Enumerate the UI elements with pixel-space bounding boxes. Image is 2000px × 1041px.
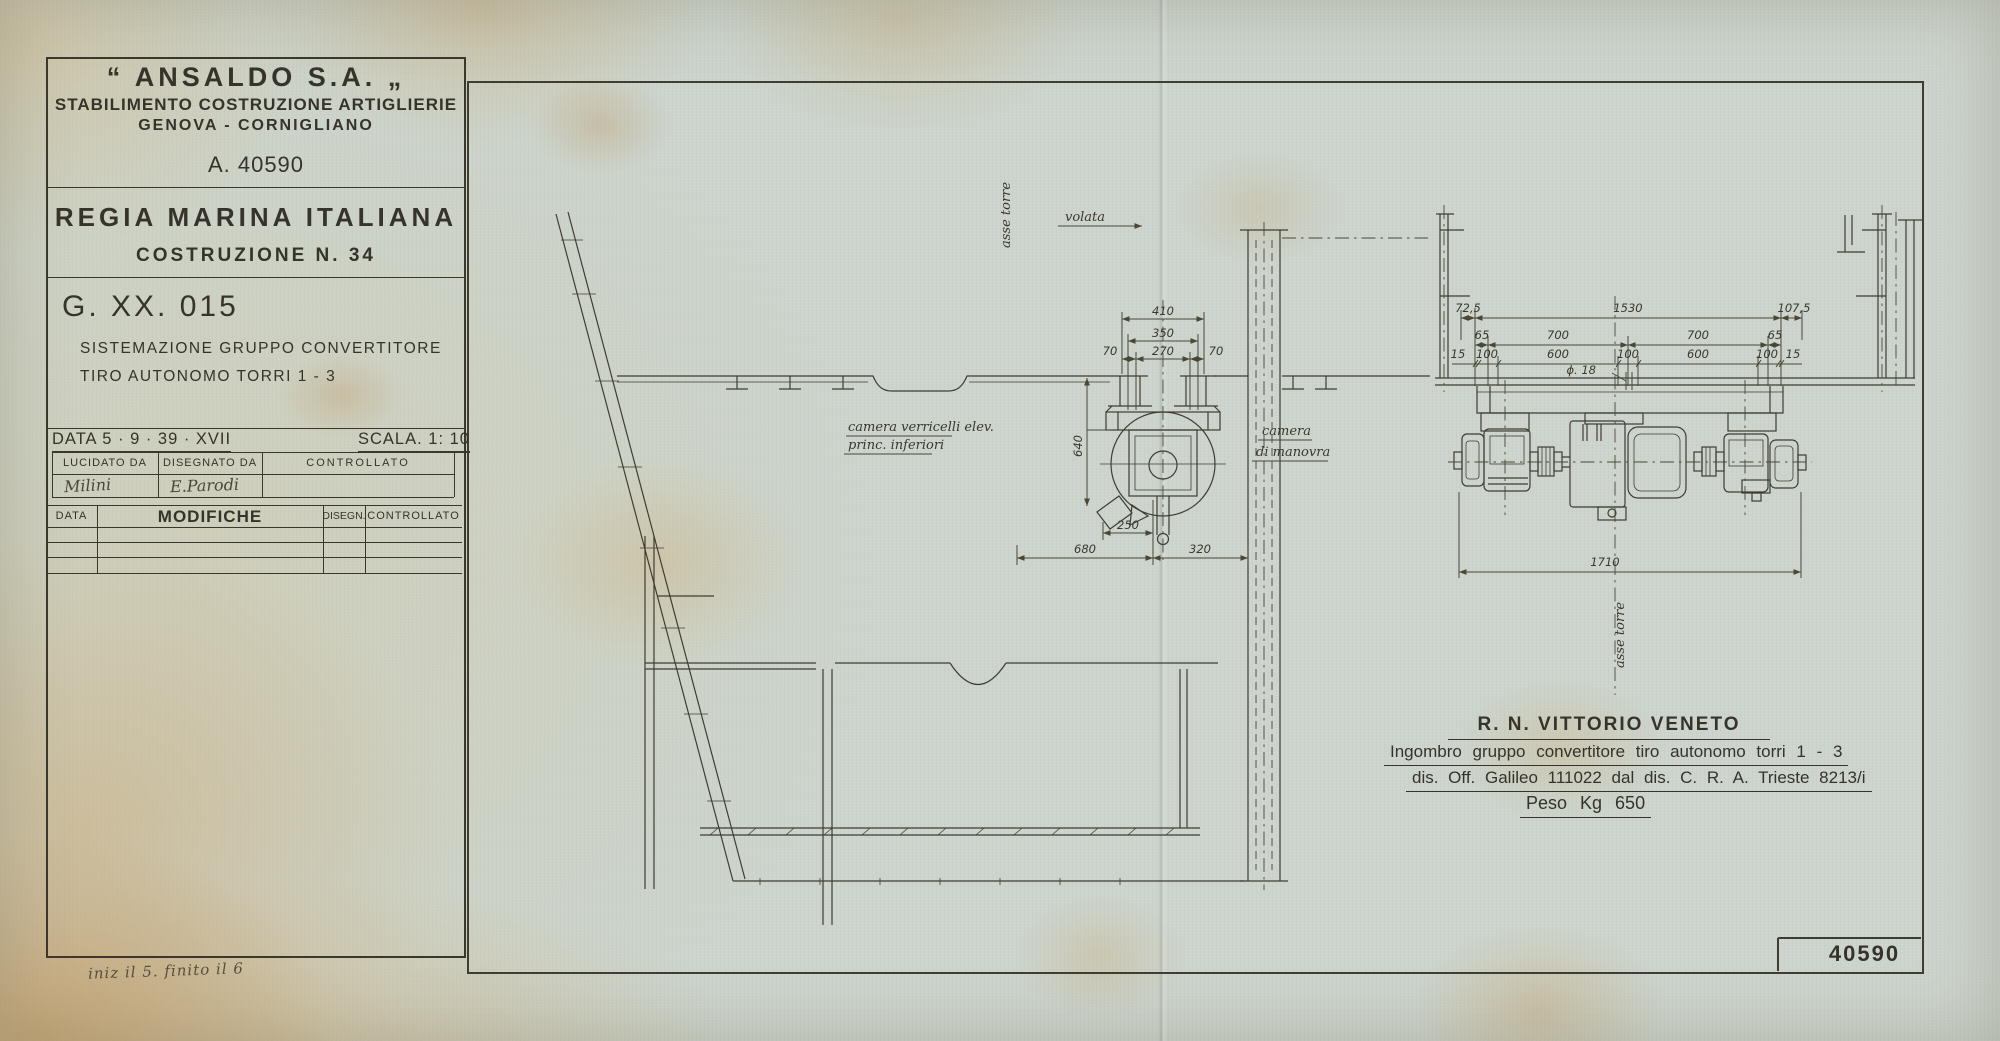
dim-270: 270 xyxy=(1152,344,1174,358)
company-name: “ ANSALDO S.A. „ xyxy=(60,62,452,93)
sig-header-controllato: CONTROLLATO xyxy=(262,457,454,469)
dim-700-right: 700 xyxy=(1687,328,1709,342)
subject-line-2: TIRO AUTONOMO TORRI 1 - 3 xyxy=(80,368,336,386)
dim-15-left: 15 xyxy=(1451,347,1466,361)
construction-number: COSTRUZIONE N. 34 xyxy=(52,245,460,267)
dim-600-left: 600 xyxy=(1547,347,1569,361)
asse-torre-elev-label: asse torre xyxy=(1613,602,1628,668)
camera-verricelli-label-2: princ. inferiori xyxy=(848,438,944,453)
sheet-number: 40590 xyxy=(1812,941,1917,967)
dim-100-c: 100 xyxy=(1756,347,1778,361)
elevation-dimensions: 72,5 1530 107,5 65 700 700 65 15 100 600… xyxy=(1451,301,1811,668)
mod-header-data: DATA xyxy=(46,510,97,522)
signature-disegnato: E.Parodi xyxy=(170,475,240,496)
note-line-1: Ingombro gruppo convertitore tiro autono… xyxy=(1384,742,1848,766)
asse-torre-plan-label: asse torre xyxy=(999,182,1014,248)
ship-name: R. N. VITTORIO VENETO xyxy=(1448,714,1770,740)
plan-dimensions: 410 350 270 70 70 250 680 320 640 xyxy=(1017,304,1248,565)
date-label: DATA 5 · 9 · 39 · XVII xyxy=(52,430,231,453)
note-weight: Peso Kg 650 xyxy=(1520,793,1651,818)
converter-plan xyxy=(1097,300,1226,560)
camera-verricelli-label-1: camera verricelli elev. xyxy=(848,420,994,435)
dim-700-left: 700 xyxy=(1547,328,1569,342)
drawing-frame xyxy=(468,82,1923,973)
signature-lucidato: Milini xyxy=(64,475,112,496)
drawing-number: G. XX. 015 xyxy=(62,290,239,324)
dim-107-5: 107,5 xyxy=(1778,301,1811,315)
volata-label: volata xyxy=(1065,210,1105,225)
plan-view: 410 350 270 70 70 250 680 320 640 asse t… xyxy=(556,182,1430,925)
dim-100-b: 100 xyxy=(1617,347,1639,361)
mod-header-disegn: DISEGN. xyxy=(321,510,367,522)
camera-manovra-label-2: di manovra xyxy=(1256,445,1330,460)
elevation-view: 72,5 1530 107,5 65 700 700 65 15 100 600… xyxy=(1435,205,1922,695)
factory-name: STABILIMENTO COSTRUZIONE ARTIGLIERIE xyxy=(52,95,460,115)
dim-72-5: 72,5 xyxy=(1455,301,1481,315)
dim-680: 680 xyxy=(1074,542,1096,556)
blueprint-sheet: 410 350 270 70 70 250 680 320 640 asse t… xyxy=(0,0,2000,1041)
dim-65-right: 65 xyxy=(1768,328,1783,342)
dim-350: 350 xyxy=(1152,326,1174,340)
converter-group-elevation xyxy=(1448,296,1812,695)
handwritten-note: iniz il 5. finito il 6 xyxy=(88,959,244,982)
factory-location: GENOVA - CORNIGLIANO xyxy=(52,117,460,135)
dim-320: 320 xyxy=(1189,542,1211,556)
dim-100-a: 100 xyxy=(1476,347,1498,361)
dim-70-right: 70 xyxy=(1209,344,1224,358)
note-line-2: dis. Off. Galileo 111022 dal dis. C. R. … xyxy=(1406,768,1872,792)
dim-70-left: 70 xyxy=(1103,344,1118,358)
subject-line-1: SISTEMAZIONE GRUPPO CONVERTITORE xyxy=(80,340,442,358)
dim-1530: 1530 xyxy=(1613,301,1642,315)
camera-manovra-label-1: camera xyxy=(1262,424,1311,439)
dim-600-right: 600 xyxy=(1687,347,1709,361)
mod-header-modifiche: MODIFICHE xyxy=(97,507,323,527)
dim-250: 250 xyxy=(1117,518,1139,532)
dim-1710: 1710 xyxy=(1590,555,1619,569)
dim-65-left: 65 xyxy=(1475,328,1490,342)
scale-label: SCALA. 1: 10 xyxy=(358,430,470,453)
mod-header-controllato: CONTROLLATO xyxy=(365,510,462,522)
dim-640: 640 xyxy=(1071,435,1085,457)
fold-crease xyxy=(1158,0,1167,1041)
dim-dia-18: ϕ. 18 xyxy=(1566,363,1596,377)
plan-labels: asse torre volata camera verricelli elev… xyxy=(844,182,1330,461)
dim-15-right: 15 xyxy=(1786,347,1801,361)
registry-number: A. 40590 xyxy=(52,152,460,178)
sig-header-disegnato: DISEGNATO DA xyxy=(158,457,262,469)
navy-title: REGIA MARINA ITALIANA xyxy=(52,202,460,233)
dim-410: 410 xyxy=(1152,304,1174,318)
sig-header-lucidato: LUCIDATO DA xyxy=(52,457,158,469)
